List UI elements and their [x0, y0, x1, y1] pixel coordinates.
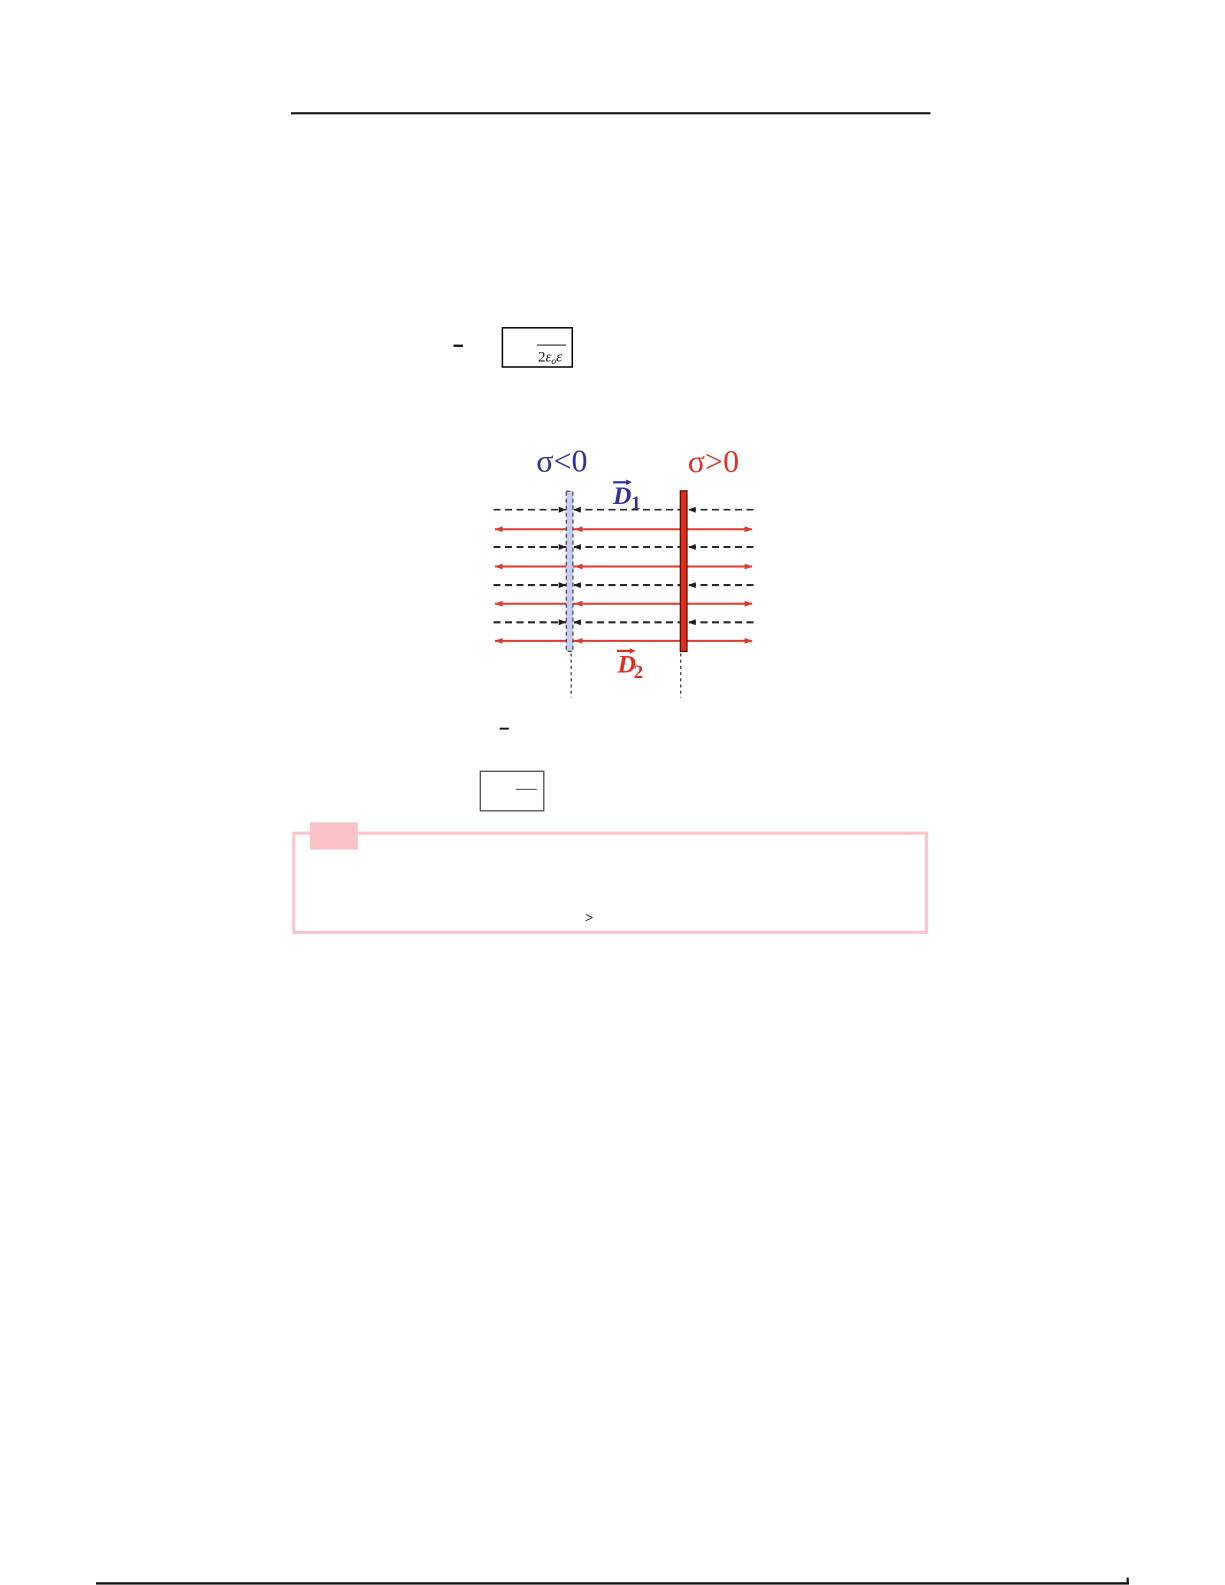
svg-text:2εoε: 2εoε — [538, 349, 562, 367]
svg-text:>: > — [585, 911, 594, 927]
svg-text:2: 2 — [634, 662, 644, 683]
svg-text:D: D — [612, 481, 631, 510]
svg-text:σ>0: σ>0 — [688, 443, 739, 479]
svg-text:1: 1 — [631, 493, 641, 514]
svg-text:σ<0: σ<0 — [536, 443, 587, 479]
